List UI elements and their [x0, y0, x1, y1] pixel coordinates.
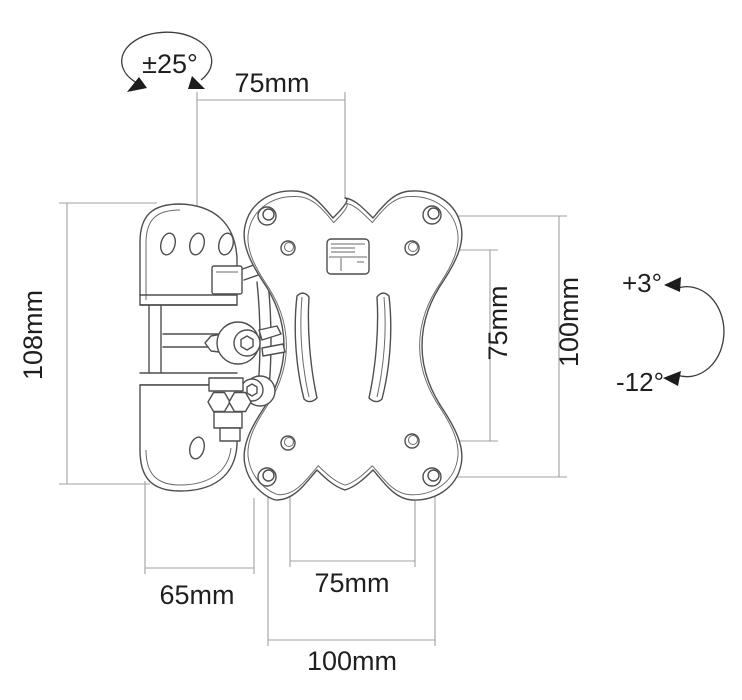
tilt-knob: [205, 322, 285, 364]
hinge-block: [212, 266, 242, 294]
label-swivel-range: ±25°: [142, 49, 198, 79]
label-top-width: 75mm: [234, 68, 309, 98]
dim-vesa-horizontal-outer: [268, 484, 435, 646]
dim-bottom-offset: [145, 481, 254, 574]
label-vesa-vertical-outer: 100mm: [554, 277, 584, 367]
swivel-arrowhead-left: [127, 77, 147, 92]
tilt-arrowhead-down: [663, 371, 681, 386]
tilt-angle-indicator: [663, 277, 724, 386]
diagram-svg: ±25° 75mm 108mm 75mm 100mm +3° -12° 65mm…: [0, 0, 742, 700]
label-vesa-horizontal-inner: 75mm: [314, 568, 389, 598]
label-tilt-down: -12°: [616, 367, 664, 397]
tilt-arrowhead-up: [664, 277, 681, 292]
label-bracket-height: 108mm: [18, 290, 48, 380]
dim-top-width: [197, 92, 345, 206]
label-bottom-offset: 65mm: [159, 580, 234, 610]
label-tilt-up: +3°: [622, 268, 662, 298]
label-vesa-horizontal-outer: 100mm: [307, 646, 397, 676]
label-vesa-vertical-inner: 75mm: [483, 285, 513, 360]
mount-dimension-diagram: ±25° 75mm 108mm 75mm 100mm +3° -12° 65mm…: [0, 0, 742, 700]
